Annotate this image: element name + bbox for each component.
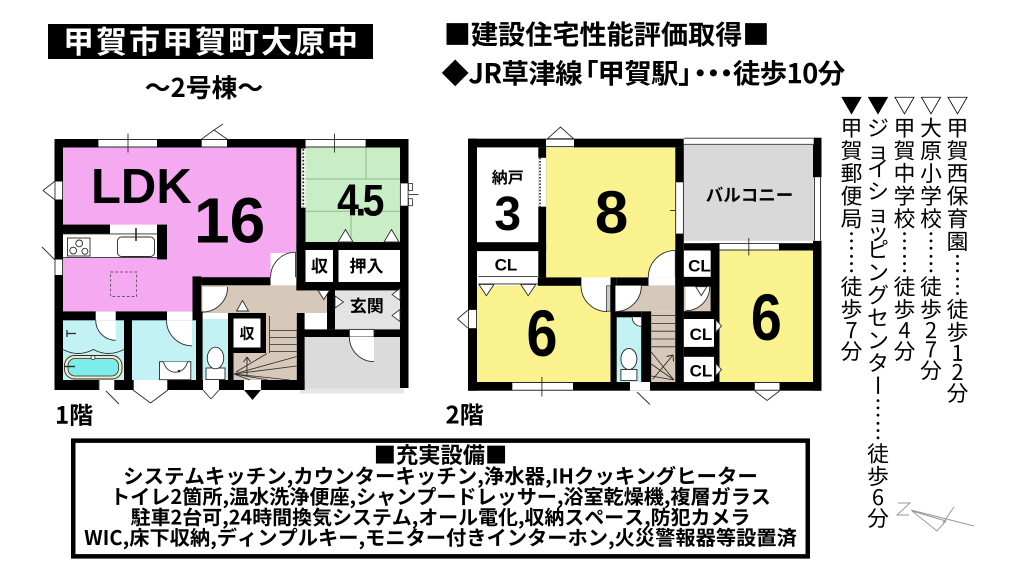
svg-text:8: 8 (595, 179, 628, 246)
svg-text:4.5: 4.5 (337, 175, 384, 225)
svg-text:CL: CL (690, 325, 713, 344)
svg-text:CL: CL (495, 256, 518, 275)
svg-text:CL: CL (688, 257, 711, 276)
svg-text:CL: CL (690, 362, 713, 381)
svg-text:3: 3 (494, 188, 521, 241)
svg-text:6: 6 (527, 297, 558, 370)
svg-text:LDK: LDK (91, 160, 192, 214)
svg-text:16: 16 (194, 184, 265, 256)
svg-text:6: 6 (751, 281, 782, 354)
